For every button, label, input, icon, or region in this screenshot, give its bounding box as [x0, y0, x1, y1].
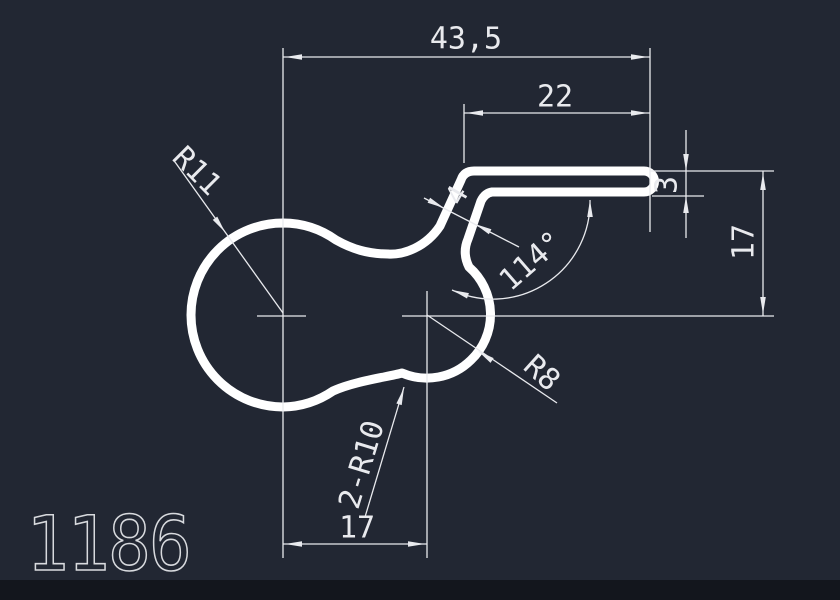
dim-label-bottom-width: 17: [339, 511, 375, 546]
cad-drawing: 43,5 22 R11 4 114° 3 17 R8 2-R10 17 1186: [0, 0, 840, 600]
dim-label-total-width: 43,5: [430, 22, 502, 57]
dim-label-upper-width: 22: [537, 80, 573, 115]
dim-label-right-height: 17: [727, 224, 762, 260]
part-number-label: 1186: [26, 499, 190, 588]
cad-canvas[interactable]: 43,5 22 R11 4 114° 3 17 R8 2-R10 17 1186: [0, 0, 840, 600]
dim-label-bar-thickness: 3: [650, 176, 685, 194]
